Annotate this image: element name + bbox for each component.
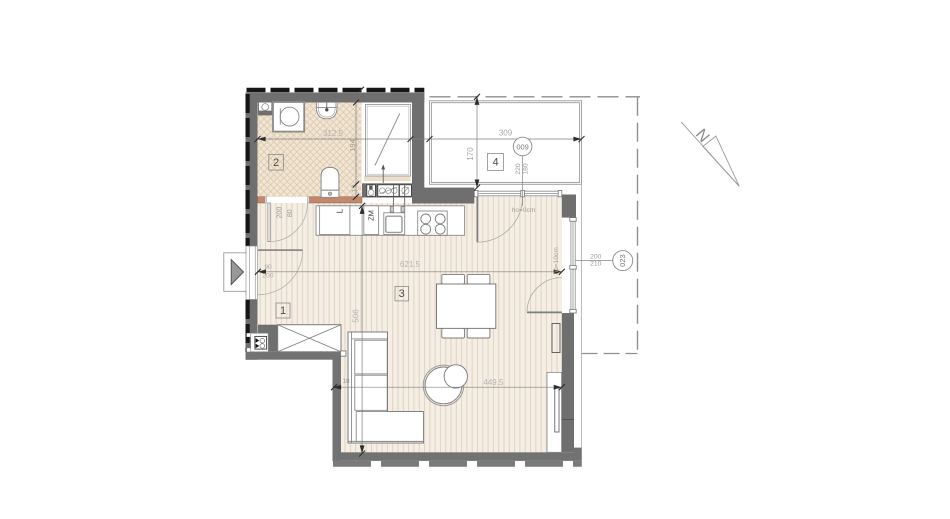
svg-text:220: 220 [515,163,522,175]
svg-text:200: 200 [590,253,602,260]
svg-text:309: 309 [499,129,513,138]
svg-text:2: 2 [273,157,279,169]
svg-text:L: L [336,208,345,213]
svg-text:18: 18 [342,378,350,385]
svg-text:ZM: ZM [367,210,376,221]
svg-text:ho=0cm: ho=0cm [512,207,536,214]
svg-text:1: 1 [280,305,286,317]
svg-text:90: 90 [264,264,272,271]
svg-text:12: 12 [350,184,359,192]
svg-text:506: 506 [351,309,360,323]
svg-text:180: 180 [522,163,529,175]
svg-text:4: 4 [492,156,498,168]
svg-text:80: 80 [287,209,294,217]
svg-text:194: 194 [348,139,357,152]
svg-text:621.5: 621.5 [400,260,421,269]
svg-text:200: 200 [277,207,284,219]
svg-text:449.5: 449.5 [483,378,504,387]
svg-text:200: 200 [262,273,273,280]
svg-text:hp=10cm: hp=10cm [553,247,560,275]
svg-text:170: 170 [466,147,475,161]
svg-text:023: 023 [618,254,627,267]
svg-text:210: 210 [590,261,602,268]
svg-text:009: 009 [516,142,529,151]
svg-text:3: 3 [399,288,405,300]
svg-text:312.5: 312.5 [323,129,344,138]
